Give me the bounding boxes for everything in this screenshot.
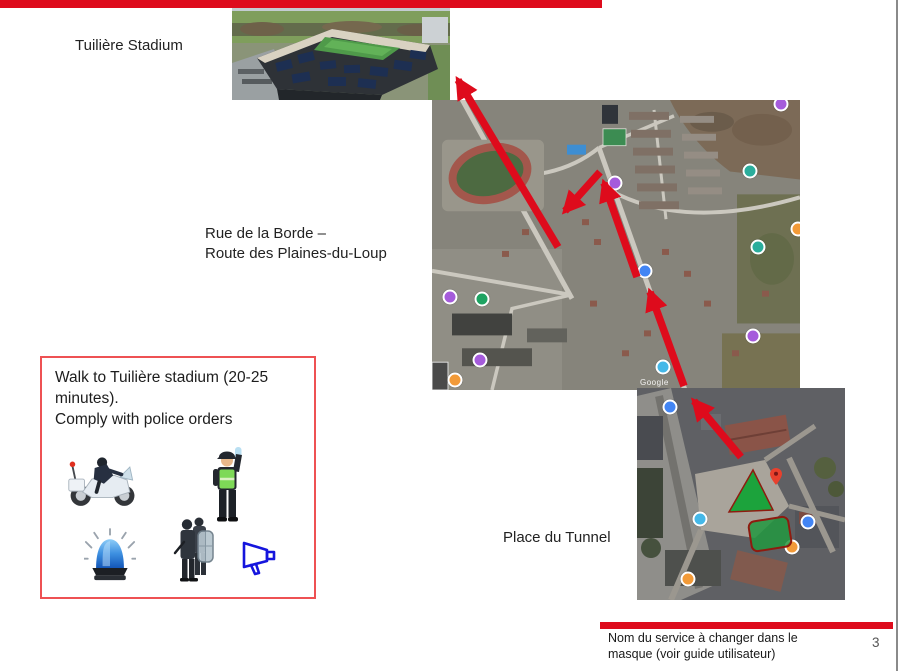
riot-police-icon xyxy=(168,514,218,582)
assembly-zone-rect[interactable] xyxy=(747,515,793,553)
map-rue-de-la-borde[interactable]: Google xyxy=(432,100,800,390)
label-tuiliere-stadium: Tuilière Stadium xyxy=(75,36,183,56)
map-marker xyxy=(801,515,816,530)
slide-canvas: Tuilière Stadium Rue de la Borde – Route… xyxy=(0,0,900,671)
footer-placeholder-text: Nom du service à changer dans le masque … xyxy=(608,631,826,662)
google-watermark: Google xyxy=(640,378,669,387)
map-marker xyxy=(693,512,708,527)
map-marker xyxy=(751,240,766,255)
top-accent-bar xyxy=(0,0,602,8)
map-marker xyxy=(638,264,653,279)
police-beacon-icon xyxy=(84,526,136,584)
map-marker xyxy=(448,373,463,388)
instruction-line2: Comply with police orders xyxy=(55,409,302,430)
satellite-art-mid xyxy=(432,100,800,390)
label-rue-de-la-borde: Rue de la Borde – Route des Plaines-du-L… xyxy=(205,224,387,264)
label-place-du-tunnel: Place du Tunnel xyxy=(503,528,611,548)
map-marker xyxy=(443,290,458,305)
instruction-box[interactable]: Walk to Tuilière stadium (20-25 minutes)… xyxy=(40,356,316,599)
slide-right-edge xyxy=(896,0,898,671)
police-motorcycle-icon xyxy=(66,450,140,510)
page-number: 3 xyxy=(872,635,880,650)
label-rue-de-la-borde-line2: Route des Plaines-du-Loup xyxy=(205,244,387,264)
instruction-line1: Walk to Tuilière stadium (20-25 minutes)… xyxy=(55,367,302,409)
map-marker xyxy=(681,572,696,587)
map-marker xyxy=(746,329,761,344)
map-place-du-tunnel[interactable] xyxy=(637,388,845,600)
megaphone-icon xyxy=(240,540,280,576)
instruction-text: Walk to Tuilière stadium (20-25 minutes)… xyxy=(55,367,302,430)
label-rue-de-la-borde-line1: Rue de la Borde – xyxy=(205,224,387,244)
map-marker xyxy=(608,176,623,191)
map-marker xyxy=(663,400,678,415)
map-marker xyxy=(656,360,671,375)
footer-accent-bar xyxy=(600,622,893,629)
stadium-photo[interactable] xyxy=(232,3,450,100)
map-marker xyxy=(743,164,758,179)
map-marker xyxy=(473,353,488,368)
stadium-photo-art xyxy=(232,3,450,100)
map-marker xyxy=(475,292,490,307)
location-pin-icon xyxy=(770,468,782,485)
map-marker xyxy=(791,222,801,237)
